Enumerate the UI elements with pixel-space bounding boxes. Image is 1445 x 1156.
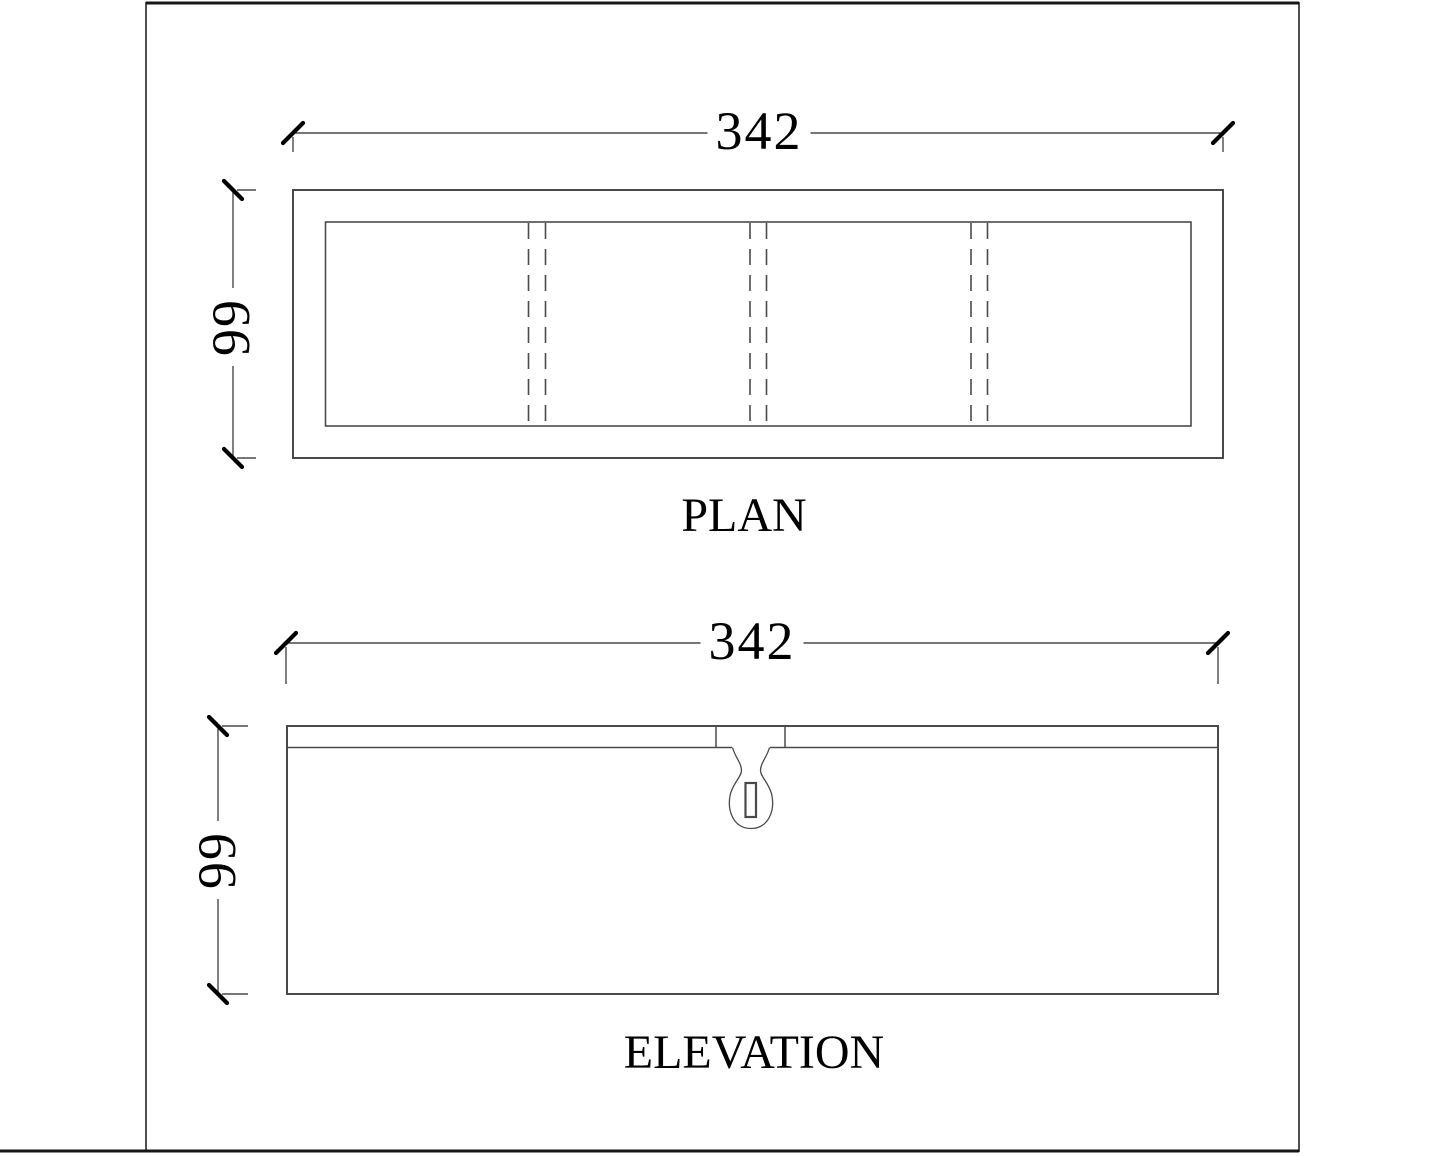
frame-border bbox=[146, 3, 1299, 1151]
elevation-outer-rect bbox=[287, 726, 1218, 994]
elevation-dim-ticks bbox=[209, 633, 1228, 1003]
plan-title: PLAN bbox=[681, 492, 806, 540]
elevation-dim-height-text: 99 bbox=[190, 821, 244, 899]
elevation-title: ELEVATION bbox=[624, 1029, 884, 1077]
plan-view-lines bbox=[233, 133, 1223, 458]
plan-dim-depth-text: 99 bbox=[204, 288, 258, 366]
plan-outer-rect bbox=[293, 190, 1223, 458]
drawing-sheet: 342 99 342 99 PLAN ELEVATION bbox=[0, 0, 1445, 1156]
sheet-frame-accents bbox=[0, 3, 1299, 1151]
plan-inner-rect bbox=[326, 222, 1192, 426]
plan-dim-width-text: 342 bbox=[708, 104, 811, 158]
elevation-dim-width-text: 342 bbox=[701, 614, 804, 668]
plan-hidden-partition-lines bbox=[529, 223, 988, 425]
sheet-frame bbox=[146, 3, 1299, 1151]
elevation-view-lines bbox=[218, 643, 1218, 994]
keyhole-slot bbox=[746, 783, 757, 817]
plan-dim-ticks bbox=[224, 123, 1233, 467]
drawing-canvas bbox=[0, 0, 1445, 1156]
